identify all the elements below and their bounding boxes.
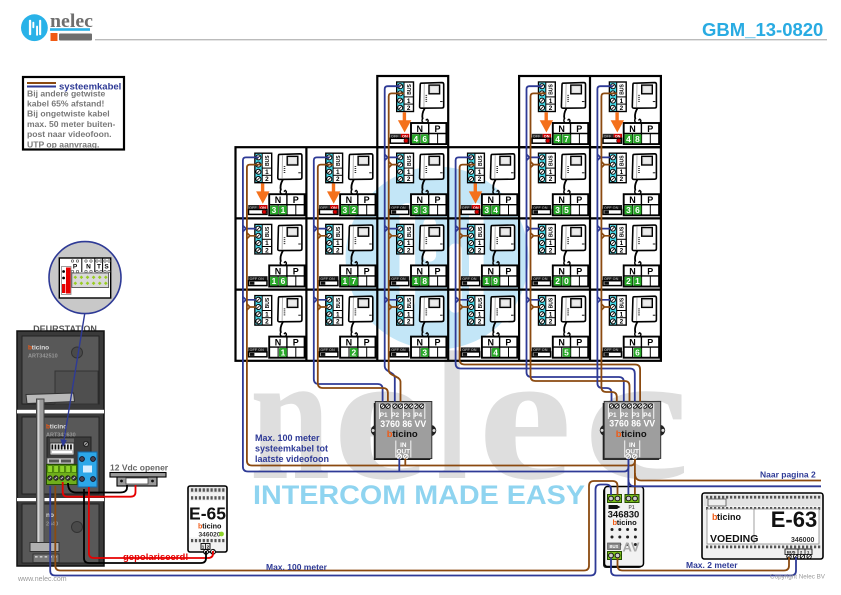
svg-text:2: 2 xyxy=(351,205,356,215)
svg-text:2: 2 xyxy=(626,276,631,286)
svg-text:346020: 346020 xyxy=(199,532,221,539)
svg-text:Max. 2 meter: Max. 2 meter xyxy=(686,560,738,570)
svg-text:ART342510: ART342510 xyxy=(28,354,58,360)
svg-text:kabel 65% afstand!: kabel 65% afstand! xyxy=(27,99,105,109)
svg-text:Naar pagina 2: Naar pagina 2 xyxy=(760,470,816,480)
svg-text:4: 4 xyxy=(493,347,498,357)
svg-text:3: 3 xyxy=(343,205,348,215)
svg-text:AV: AV xyxy=(623,540,640,555)
svg-text:3: 3 xyxy=(555,205,560,215)
svg-text:ticino: ticino xyxy=(32,345,49,352)
svg-text:1: 1 xyxy=(281,347,286,357)
svg-text:3760 86 VV: 3760 86 VV xyxy=(380,419,426,429)
svg-text:3760 86 VV: 3760 86 VV xyxy=(609,419,655,429)
svg-text:0: 0 xyxy=(564,276,569,286)
svg-text:ticino: ticino xyxy=(717,512,742,522)
svg-text:Max. 100 meter: Max. 100 meter xyxy=(255,433,320,443)
svg-text:laatste videofoon: laatste videofoon xyxy=(255,454,329,464)
svg-text:S: S xyxy=(104,264,109,271)
svg-text:3: 3 xyxy=(484,205,489,215)
svg-text:ticino: ticino xyxy=(392,429,418,440)
svg-text:5: 5 xyxy=(564,347,569,357)
svg-text:2: 2 xyxy=(555,276,560,286)
svg-text:1: 1 xyxy=(635,276,640,286)
svg-text:GBM_13-0820: GBM_13-0820 xyxy=(702,19,823,40)
svg-text:1: 1 xyxy=(413,276,418,286)
svg-text:Bij ongetwiste kabel: Bij ongetwiste kabel xyxy=(27,109,110,119)
svg-text:7: 7 xyxy=(351,276,356,286)
svg-text:7: 7 xyxy=(564,134,569,144)
svg-text:2640: 2640 xyxy=(46,522,58,528)
svg-text:T: T xyxy=(97,264,101,271)
svg-text:INTERCOM MADE EASY: INTERCOM MADE EASY xyxy=(253,480,585,510)
svg-text:gepolariseerd!: gepolariseerd! xyxy=(123,552,188,563)
svg-text:ticino: ticino xyxy=(50,424,67,431)
svg-text:BUS: BUS xyxy=(787,550,796,555)
svg-text:4: 4 xyxy=(413,134,418,144)
svg-text:Copyright Nelec BV: Copyright Nelec BV xyxy=(770,574,826,581)
svg-text:1: 1 xyxy=(343,276,348,286)
svg-text:12 Vdc opener: 12 Vdc opener xyxy=(110,463,169,473)
svg-text:6: 6 xyxy=(635,347,640,357)
svg-text:ticino: ticino xyxy=(617,518,637,527)
svg-text:2: 2 xyxy=(351,347,356,357)
svg-text:ticino: ticino xyxy=(621,429,647,440)
svg-text:4: 4 xyxy=(626,134,631,144)
svg-text:E-63: E-63 xyxy=(771,507,817,532)
svg-text:346000: 346000 xyxy=(791,537,814,544)
svg-text:systeemkabel tot: systeemkabel tot xyxy=(255,443,328,453)
svg-text:8: 8 xyxy=(422,276,427,286)
svg-text:Bij andere getwiste: Bij andere getwiste xyxy=(27,88,106,98)
svg-text:1: 1 xyxy=(272,276,277,286)
svg-text:5: 5 xyxy=(564,205,569,215)
svg-text:UTP op aanvraag.: UTP op aanvraag. xyxy=(27,139,99,149)
svg-text:3: 3 xyxy=(272,205,277,215)
svg-text:3: 3 xyxy=(422,205,427,215)
svg-text:1: 1 xyxy=(484,276,489,286)
svg-text:N: N xyxy=(86,264,91,271)
svg-text:P: P xyxy=(73,264,78,271)
svg-text:3: 3 xyxy=(413,205,418,215)
svg-text:VOEDING: VOEDING xyxy=(710,533,758,545)
svg-text:3: 3 xyxy=(626,205,631,215)
svg-text:8: 8 xyxy=(635,134,640,144)
svg-text:Max. 100 meter: Max. 100 meter xyxy=(266,562,328,572)
svg-text:3: 3 xyxy=(422,347,427,357)
svg-text:6: 6 xyxy=(281,276,286,286)
svg-text:4: 4 xyxy=(493,205,498,215)
svg-text:ticino: ticino xyxy=(202,522,222,531)
svg-text:6: 6 xyxy=(422,134,427,144)
svg-text:E-65: E-65 xyxy=(189,504,226,524)
svg-text:BUS: BUS xyxy=(610,544,619,549)
svg-text:post naar videofoon.: post naar videofoon. xyxy=(27,129,112,139)
svg-text:max. 50 meter buiten-: max. 50 meter buiten- xyxy=(27,119,115,129)
svg-text:4: 4 xyxy=(555,134,560,144)
svg-text:1: 1 xyxy=(281,205,286,215)
svg-text:9: 9 xyxy=(493,276,498,286)
svg-text:6: 6 xyxy=(635,205,640,215)
svg-text:www.nelec.com: www.nelec.com xyxy=(17,576,67,583)
